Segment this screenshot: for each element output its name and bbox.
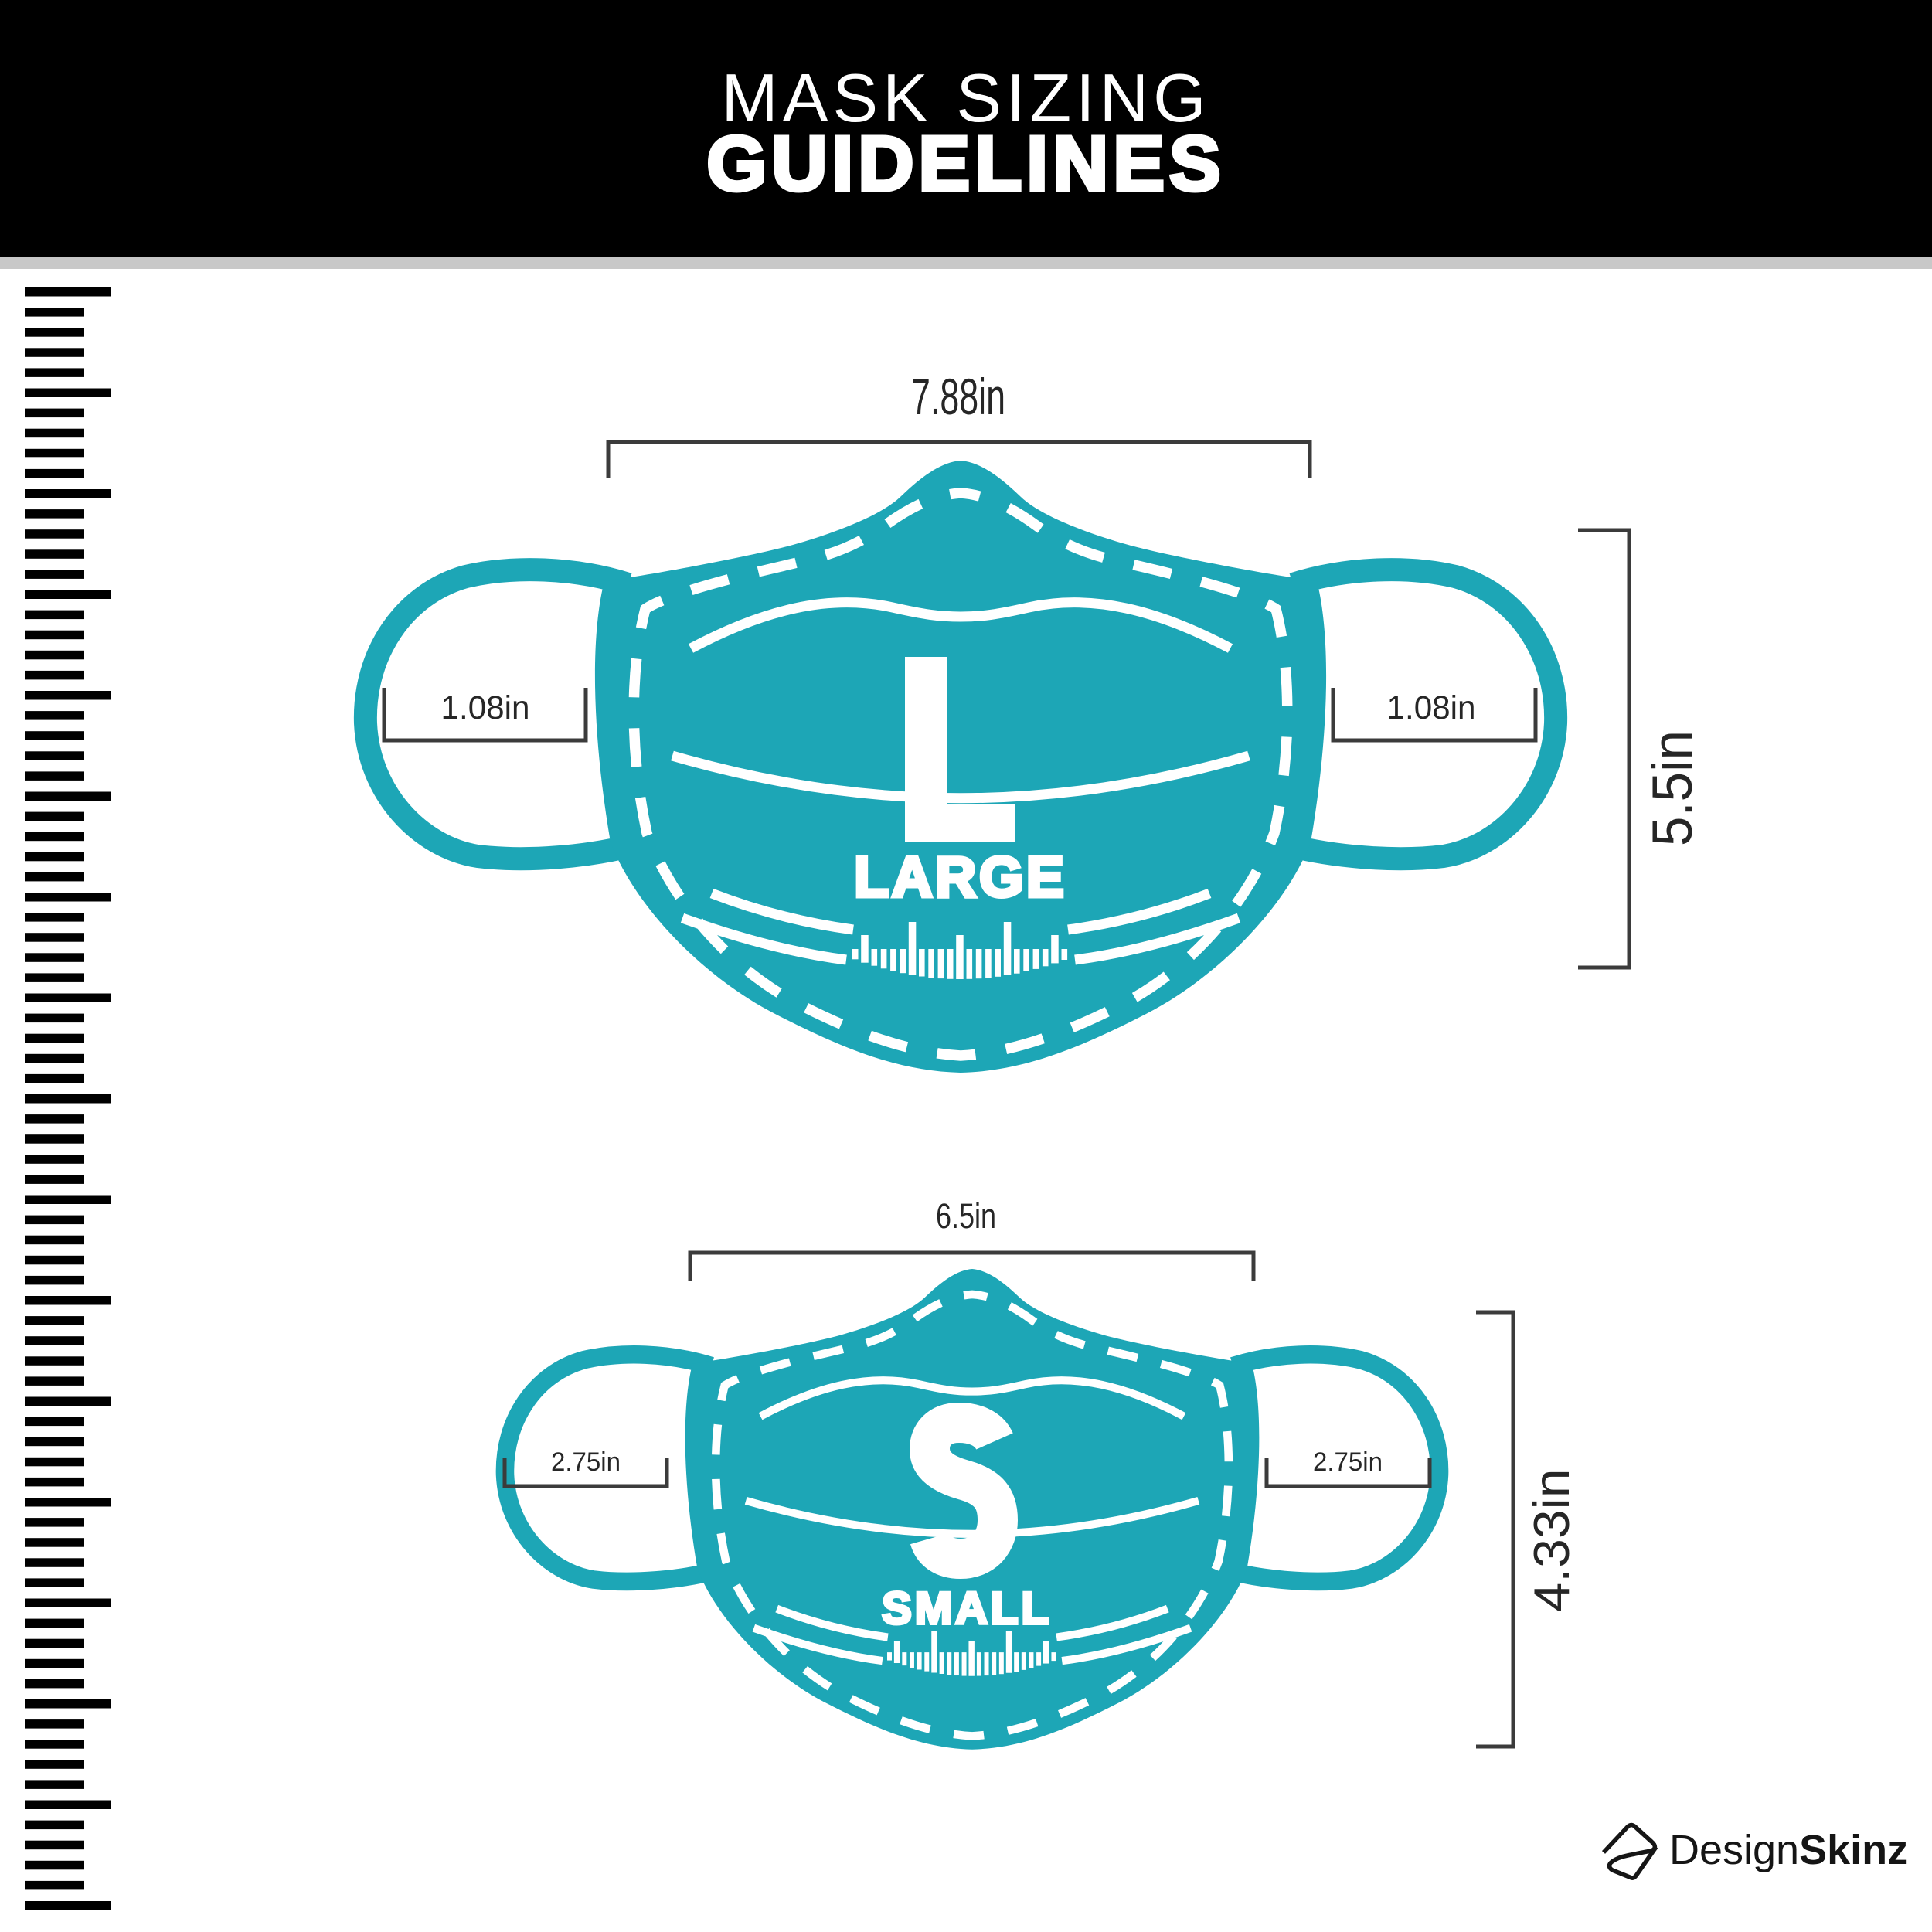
- svg-text:6.5in: 6.5in: [936, 1196, 996, 1236]
- svg-text:2.75in: 2.75in: [551, 1447, 621, 1477]
- svg-text:LARGE: LARGE: [854, 846, 1067, 909]
- svg-text:7.88in: 7.88in: [911, 368, 1005, 425]
- svg-text:GUIDELINES: GUIDELINES: [706, 121, 1225, 207]
- svg-text:1.08in: 1.08in: [1387, 689, 1476, 726]
- svg-text:2.75in: 2.75in: [1313, 1447, 1383, 1477]
- svg-text:5.5in: 5.5in: [1641, 730, 1704, 846]
- svg-text:SMALL: SMALL: [882, 1583, 1052, 1634]
- svg-text:1.08in: 1.08in: [441, 689, 530, 726]
- svg-text:4.33in: 4.33in: [1523, 1469, 1580, 1612]
- svg-text:DesignSkinz: DesignSkinz: [1669, 1827, 1908, 1873]
